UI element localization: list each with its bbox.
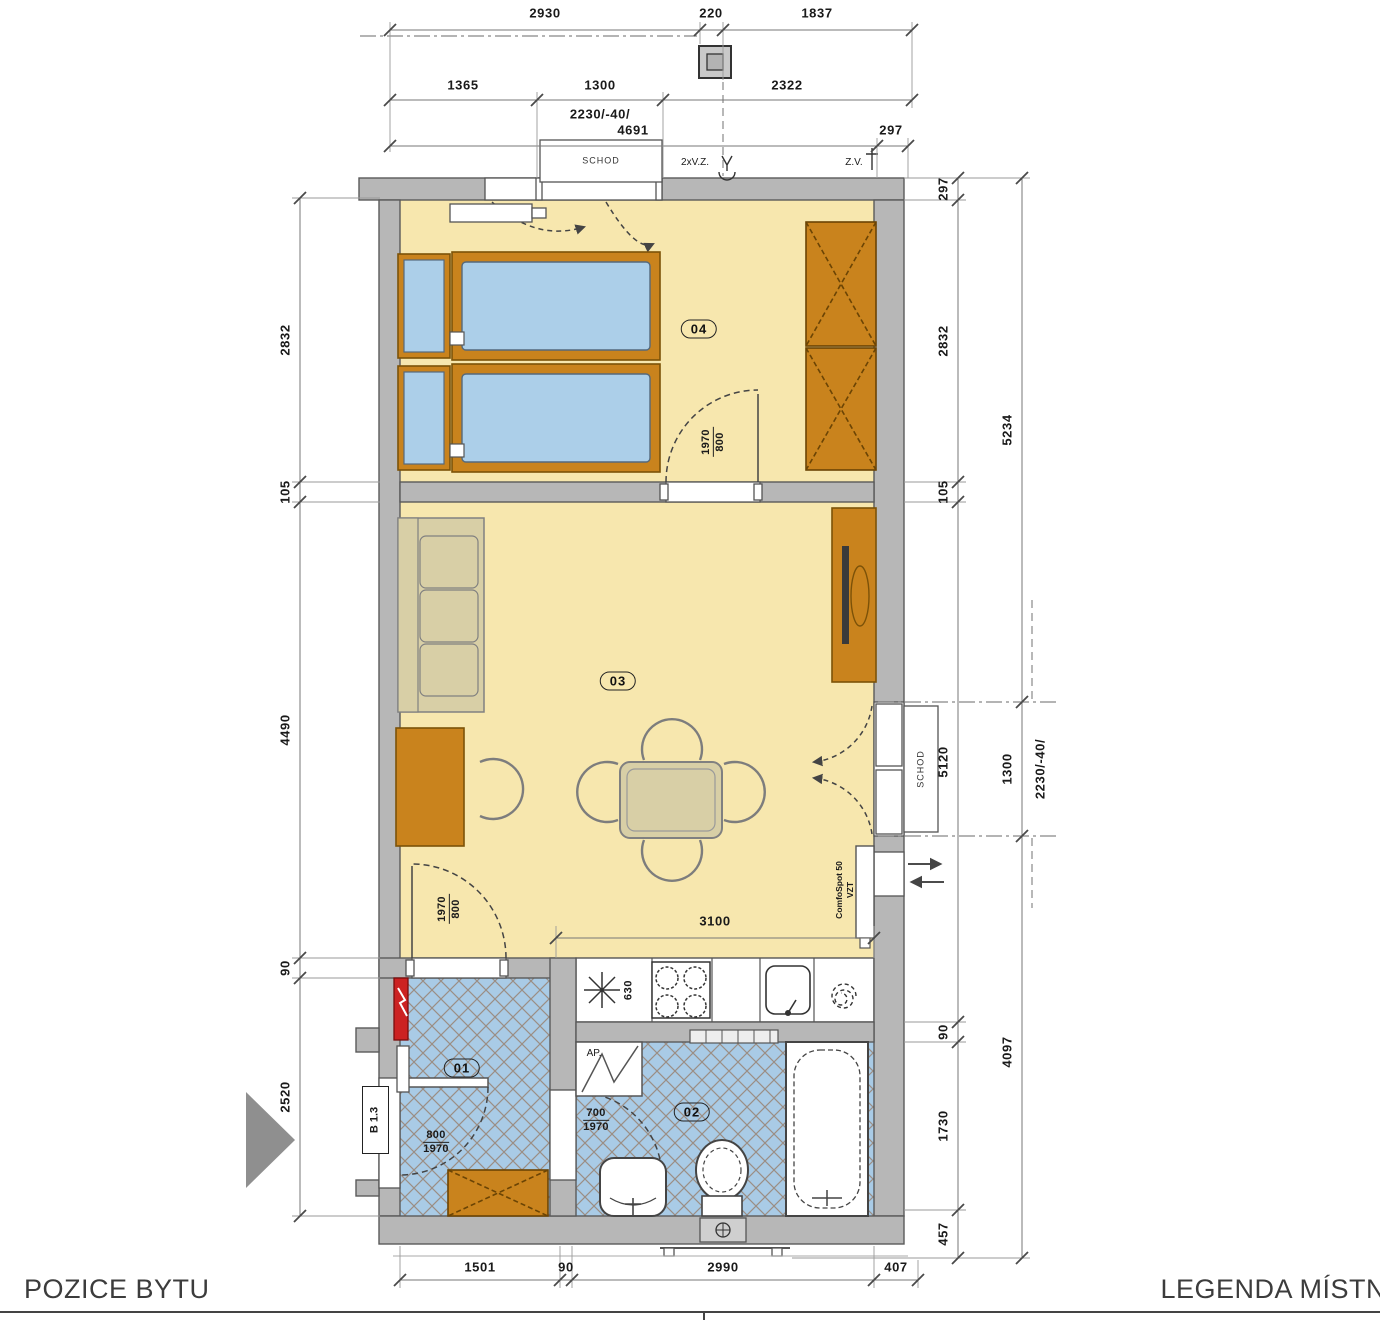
dim-left-4490: 4490 <box>279 714 292 745</box>
comfospot-label: ComfoSpot 50 VZT <box>834 861 856 919</box>
note-zv: Z.V. <box>845 158 862 168</box>
shelf <box>450 204 532 222</box>
dim-top-1300: 1300 <box>584 79 615 92</box>
dim-kitchen-3100: 3100 <box>699 915 730 928</box>
dim-right-4097: 4097 <box>1001 1036 1014 1067</box>
dim-top-4691: 4691 <box>617 124 648 137</box>
door-label-hall-living: 1970 800 <box>436 894 462 924</box>
dim-top-2930: 2930 <box>529 7 560 20</box>
dim-left-2520: 2520 <box>279 1081 292 1112</box>
floor-plan: 2930 220 1837 1365 1300 2322 2230/-40/ 4… <box>0 0 1380 1320</box>
dim-right-457: 457 <box>937 1222 950 1246</box>
balcony-rail <box>660 1248 790 1256</box>
door-height: 1970 <box>583 1121 609 1134</box>
step-label-top: SCHOD <box>582 156 620 167</box>
dim-right-1730: 1730 <box>937 1110 950 1141</box>
sink <box>766 966 810 1014</box>
door-width: 800 <box>423 1129 449 1143</box>
dim-top-220: 220 <box>699 7 723 20</box>
washer-label: AP. <box>587 1049 602 1059</box>
door-label-bedroom: 1970 800 <box>700 427 726 457</box>
door-width: 1970 <box>700 427 714 457</box>
door-height: 1970 <box>423 1143 449 1156</box>
dim-right-105: 105 <box>937 480 950 504</box>
toilet <box>696 1140 748 1242</box>
dim-left-90: 90 <box>279 960 292 976</box>
dim-right-2230: 2230/-40/ <box>1034 739 1047 799</box>
dim-left-105: 105 <box>279 480 292 504</box>
door-height: 800 <box>450 894 463 924</box>
unit-number: B 1.3 <box>370 1107 381 1133</box>
bed-1 <box>398 252 660 360</box>
door-width: 1970 <box>436 894 450 924</box>
step-label-right: SCHOD <box>916 750 927 788</box>
wall-cabinet <box>397 1046 409 1092</box>
door-height: 800 <box>714 427 727 457</box>
dim-right-5120: 5120 <box>937 746 950 777</box>
tv-cabinet <box>832 508 876 682</box>
room-label-04: 04 <box>681 320 717 339</box>
fan-size-label: 630 <box>624 980 635 1000</box>
bathtub <box>786 1042 868 1216</box>
dim-top-1837: 1837 <box>801 7 832 20</box>
bedside-lamp <box>450 444 464 457</box>
dim-right-5234: 5234 <box>1001 414 1014 445</box>
note-vz: 2xV.Z. <box>681 158 709 168</box>
dim-right-90: 90 <box>937 1024 950 1040</box>
footer-title-left: POZICE BYTU <box>24 1276 210 1303</box>
dim-top-2322: 2322 <box>771 79 802 92</box>
unit-number-box: B 1.3 <box>362 1086 389 1154</box>
shoe-cabinet <box>448 1170 548 1216</box>
comfospot-line1: ComfoSpot 50 <box>834 861 845 919</box>
dim-left-2832: 2832 <box>279 324 292 355</box>
dim-bottom-2990: 2990 <box>707 1261 738 1274</box>
floor-plan-drawing <box>0 0 1380 1320</box>
footer-title-right: LEGENDA MÍSTN <box>1160 1276 1380 1303</box>
comfospot-line2: VZT <box>845 861 856 919</box>
dim-bottom-90: 90 <box>558 1261 574 1274</box>
dim-bottom-1501: 1501 <box>464 1261 495 1274</box>
title-block-rule <box>0 1312 1380 1320</box>
dim-top-1365: 1365 <box>447 79 478 92</box>
wardrobe <box>806 222 876 470</box>
comfospot-unit <box>856 846 874 948</box>
symbol-vz <box>719 156 735 180</box>
room-label-02: 02 <box>674 1103 710 1122</box>
electrical-panel <box>394 978 408 1040</box>
vent-arrows <box>908 864 944 882</box>
dim-top-297: 297 <box>879 124 903 137</box>
room-label-01: 01 <box>444 1059 480 1078</box>
washbasin <box>600 1158 666 1216</box>
dim-right-1300: 1300 <box>1001 753 1014 784</box>
towel-rail <box>690 1030 778 1043</box>
sofa <box>398 518 484 712</box>
dim-top-2230: 2230/-40/ <box>570 108 630 121</box>
dim-bottom-407: 407 <box>884 1261 908 1274</box>
dim-right-2832: 2832 <box>937 325 950 356</box>
dim-right-297: 297 <box>937 177 950 201</box>
door-width: 700 <box>583 1107 609 1121</box>
bedside-lamp <box>450 332 464 345</box>
door-label-bath: 700 1970 <box>583 1107 609 1133</box>
fan-symbol <box>584 972 620 1008</box>
room-label-03: 03 <box>600 672 636 691</box>
cabinet <box>396 728 464 846</box>
stove <box>652 962 710 1018</box>
door-label-entry: 800 1970 <box>423 1129 449 1155</box>
bed-2 <box>398 364 660 472</box>
